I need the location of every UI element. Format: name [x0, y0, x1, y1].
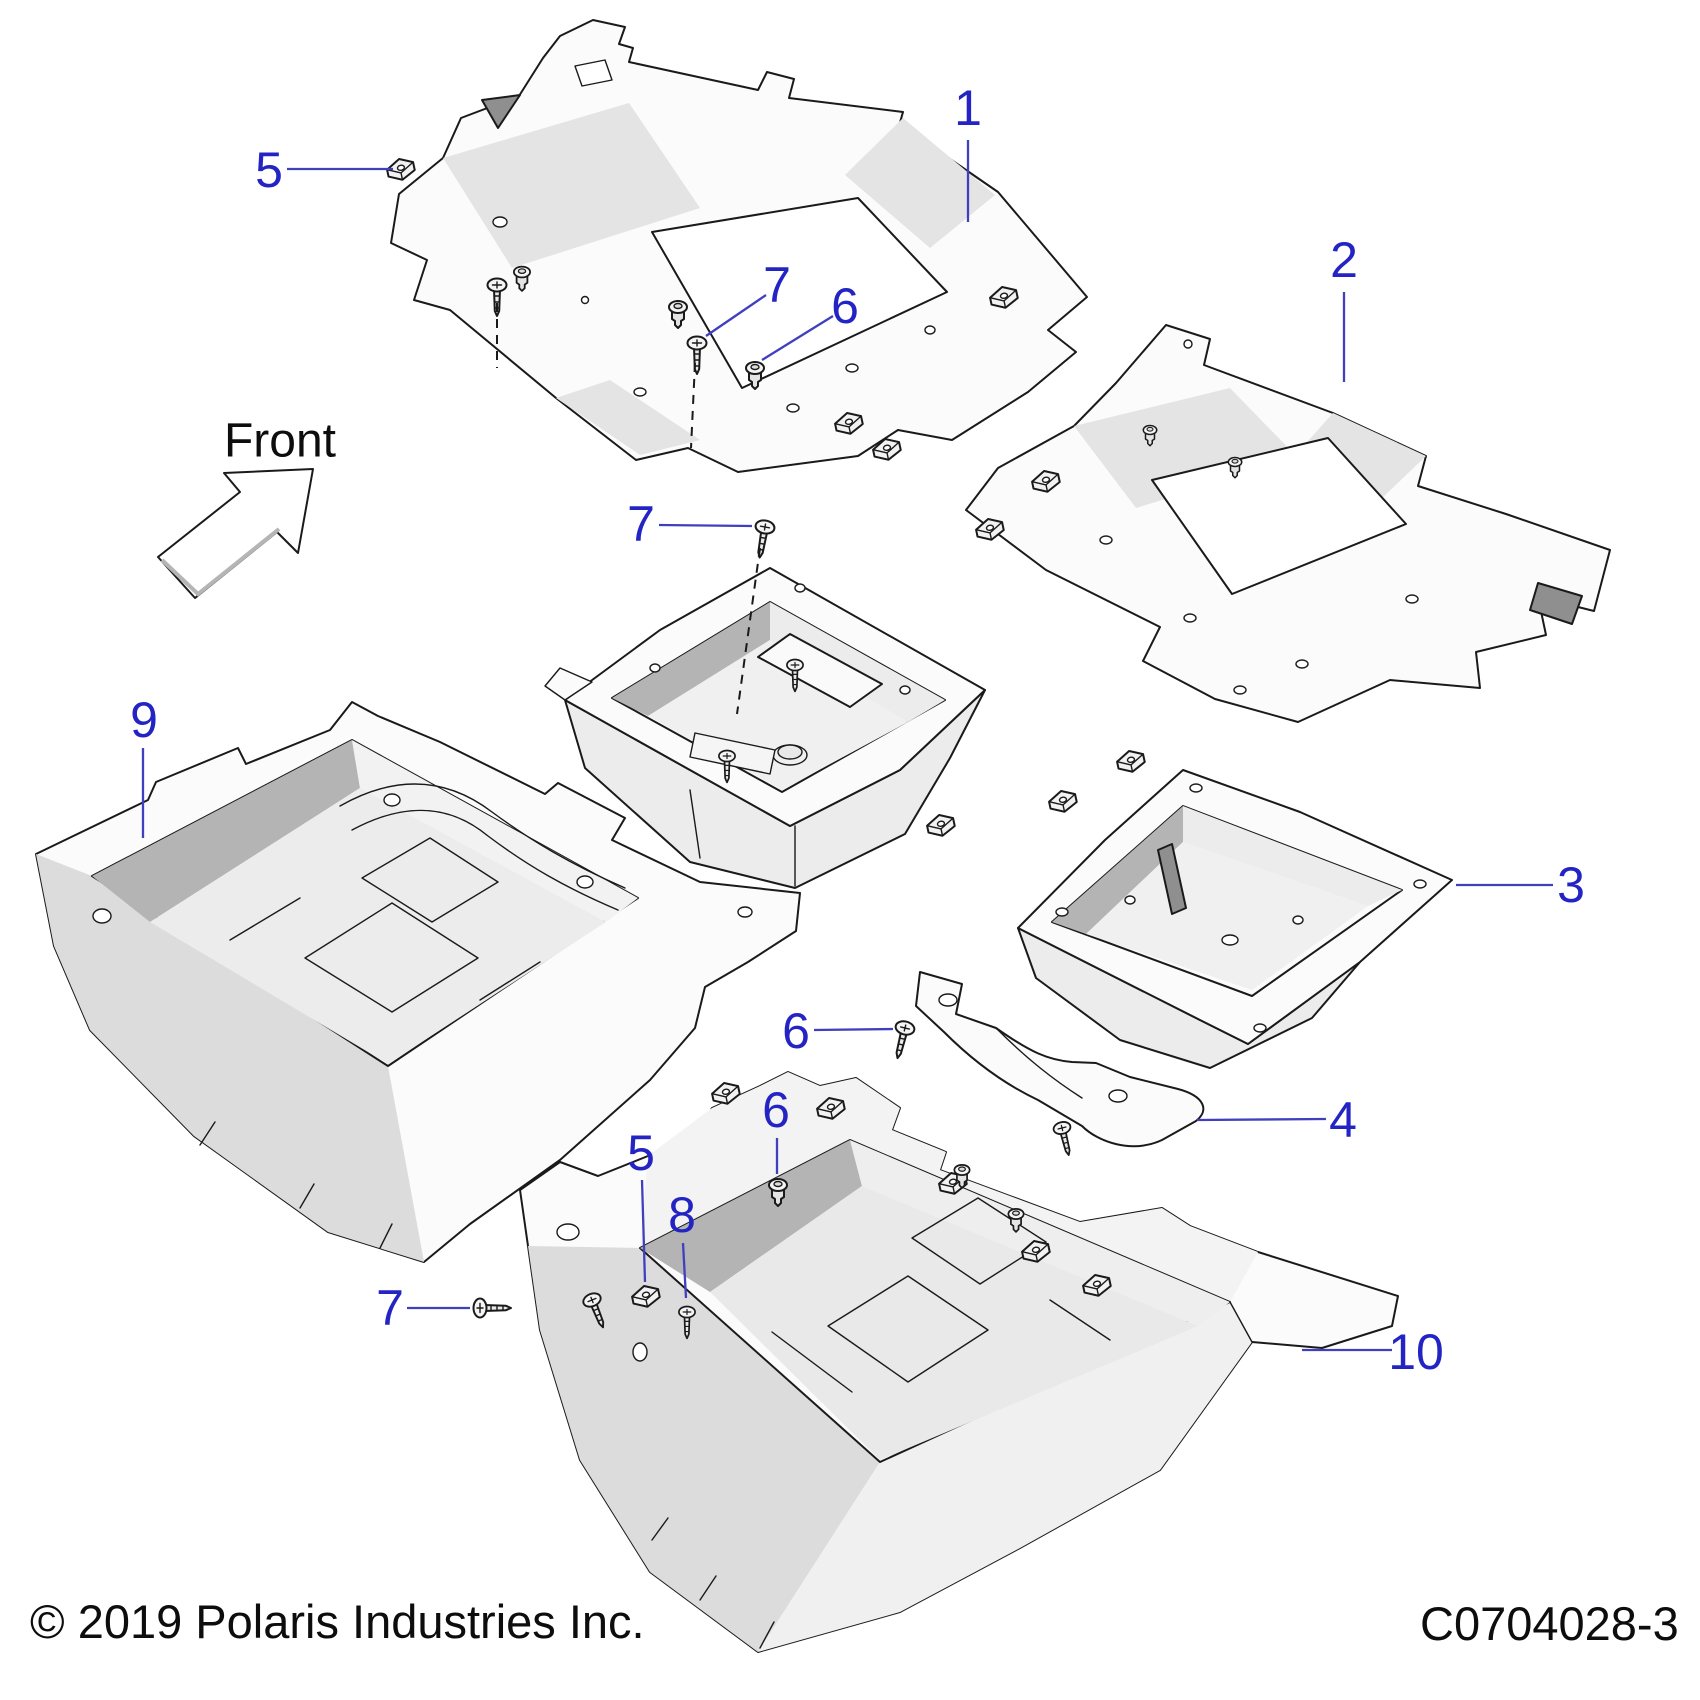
callout-2: 2: [1330, 235, 1358, 285]
exploded-view-artwork: [0, 0, 1700, 1700]
part-2-floor-panel-rear: [966, 325, 1610, 722]
part-1-floor-panel-front: [391, 20, 1087, 472]
front-direction-arrow: [158, 469, 313, 598]
part-code-text: C0704028-3: [1420, 1596, 1679, 1651]
callout-6-lower: 6: [762, 1085, 790, 1135]
callout-1: 1: [954, 83, 982, 133]
callout-6-mid: 6: [782, 1006, 810, 1056]
callout-8: 8: [668, 1190, 696, 1240]
callout-3: 3: [1557, 860, 1585, 910]
callout-7-bottom: 7: [376, 1283, 404, 1333]
callout-5-top: 5: [255, 145, 283, 195]
front-label: Front: [224, 414, 336, 469]
callout-5-lower: 5: [627, 1128, 655, 1178]
callout-10: 10: [1388, 1327, 1444, 1377]
copyright-text: © 2019 Polaris Industries Inc.: [30, 1594, 645, 1649]
callout-6-panel1: 6: [831, 281, 859, 331]
callout-7-bin: 7: [627, 499, 655, 549]
callout-9: 9: [130, 695, 158, 745]
parts-diagram-page: Front 1 2 3 4 5 7 6 7 9 6 6 5 8 7 10 © 2…: [0, 0, 1700, 1700]
leader-6-mid: [814, 1029, 893, 1030]
callout-7-panel1: 7: [763, 260, 791, 310]
leader-7-bin: [659, 525, 752, 526]
leader-4: [1197, 1119, 1326, 1120]
part-3-storage-bin-right: [1018, 770, 1452, 1068]
callout-4: 4: [1329, 1095, 1357, 1145]
